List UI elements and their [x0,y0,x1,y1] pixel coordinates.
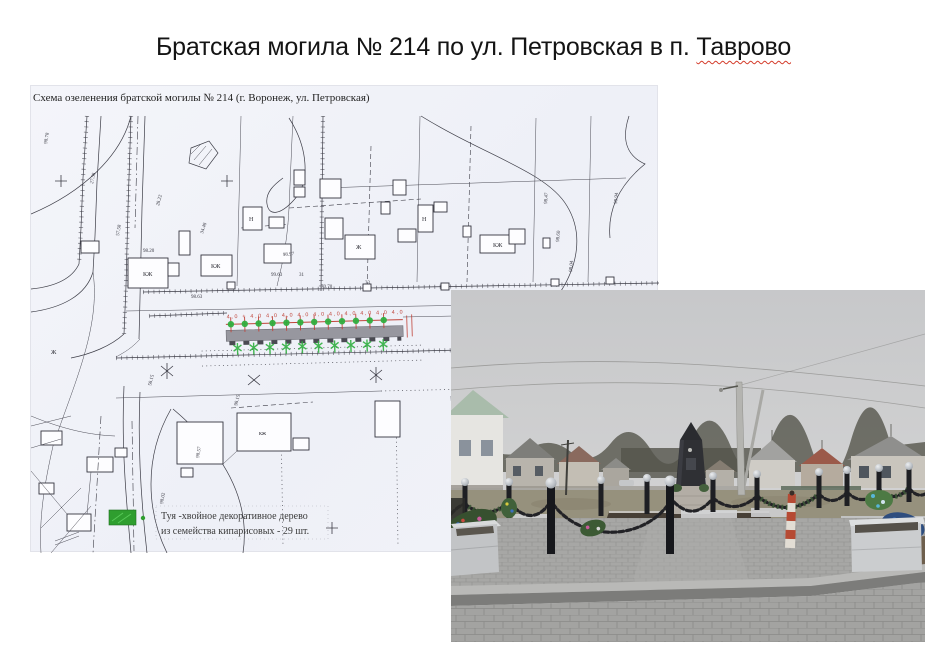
legend-swatch [109,510,136,525]
svg-text:98.60: 98.60 [556,230,562,242]
svg-text:98.02: 98.02 [160,492,167,504]
svg-text:КЖ: КЖ [493,243,503,249]
walkway [631,518,751,588]
svg-text:98.94: 98.94 [614,192,620,204]
svg-text:Ж: Ж [356,245,362,251]
svg-text:70.70: 70.70 [321,285,333,290]
memorial-photo [451,290,925,642]
dimension-labels: 4,0 + 4,0 4,0 4,0 4,0 4,0 4,0 4,0 4,0 4,… [227,310,403,321]
svg-text:98.78: 98.78 [44,132,51,144]
svg-text:КЖ: КЖ [143,272,153,278]
svg-text:98.15: 98.15 [234,394,242,407]
svg-text:98.04: 98.04 [569,260,575,272]
slide: Братская могила № 214 по ул. Петровская … [0,0,947,664]
title-main: Братская могила № 214 по ул. Петровская … [156,33,690,61]
svg-text:98.97: 98.97 [283,252,295,258]
svg-text:98.47: 98.47 [544,192,550,204]
svg-text:34.48: 34.48 [200,222,208,235]
map-buildings-south [177,401,400,477]
map-legend: Туя -хвойное декоративное дерево из семе… [109,506,328,539]
map-bottom-left-cluster [31,416,127,553]
svg-text:58.15: 58.15 [148,374,156,387]
legend-line-2: из семейства кипарисовых - 29 шт. [161,526,309,537]
legend-line-1: Туя -хвойное декоративное дерево [161,511,308,522]
svg-text:28.22: 28.22 [156,194,164,207]
svg-text:КЖ: КЖ [211,264,221,270]
svg-text:57.58: 57.58 [116,224,123,236]
svg-text:Ж: Ж [51,350,57,356]
svg-text:98.63: 98.63 [191,295,203,300]
photo-scene [451,290,925,642]
tree-row-lower [233,339,387,355]
legend-dot [141,516,145,520]
map-hatched-area [189,141,218,169]
svg-text:Н: Н [422,217,427,223]
svg-text:98.20: 98.20 [143,249,155,254]
svg-text:31: 31 [299,273,305,278]
title-underlined-word: Таврово [696,33,791,61]
svg-text:99.63: 99.63 [271,273,283,278]
svg-text:27.58: 27.58 [90,172,97,185]
svg-text:Н: Н [249,217,254,223]
page-title: Братская могила № 214 по ул. Петровская … [0,33,947,62]
svg-text:33: 33 [365,281,371,286]
memorial-strip: 4,0 + 4,0 4,0 4,0 4,0 4,0 4,0 4,0 4,0 4,… [201,309,422,366]
svg-text:кж: кж [259,431,267,437]
